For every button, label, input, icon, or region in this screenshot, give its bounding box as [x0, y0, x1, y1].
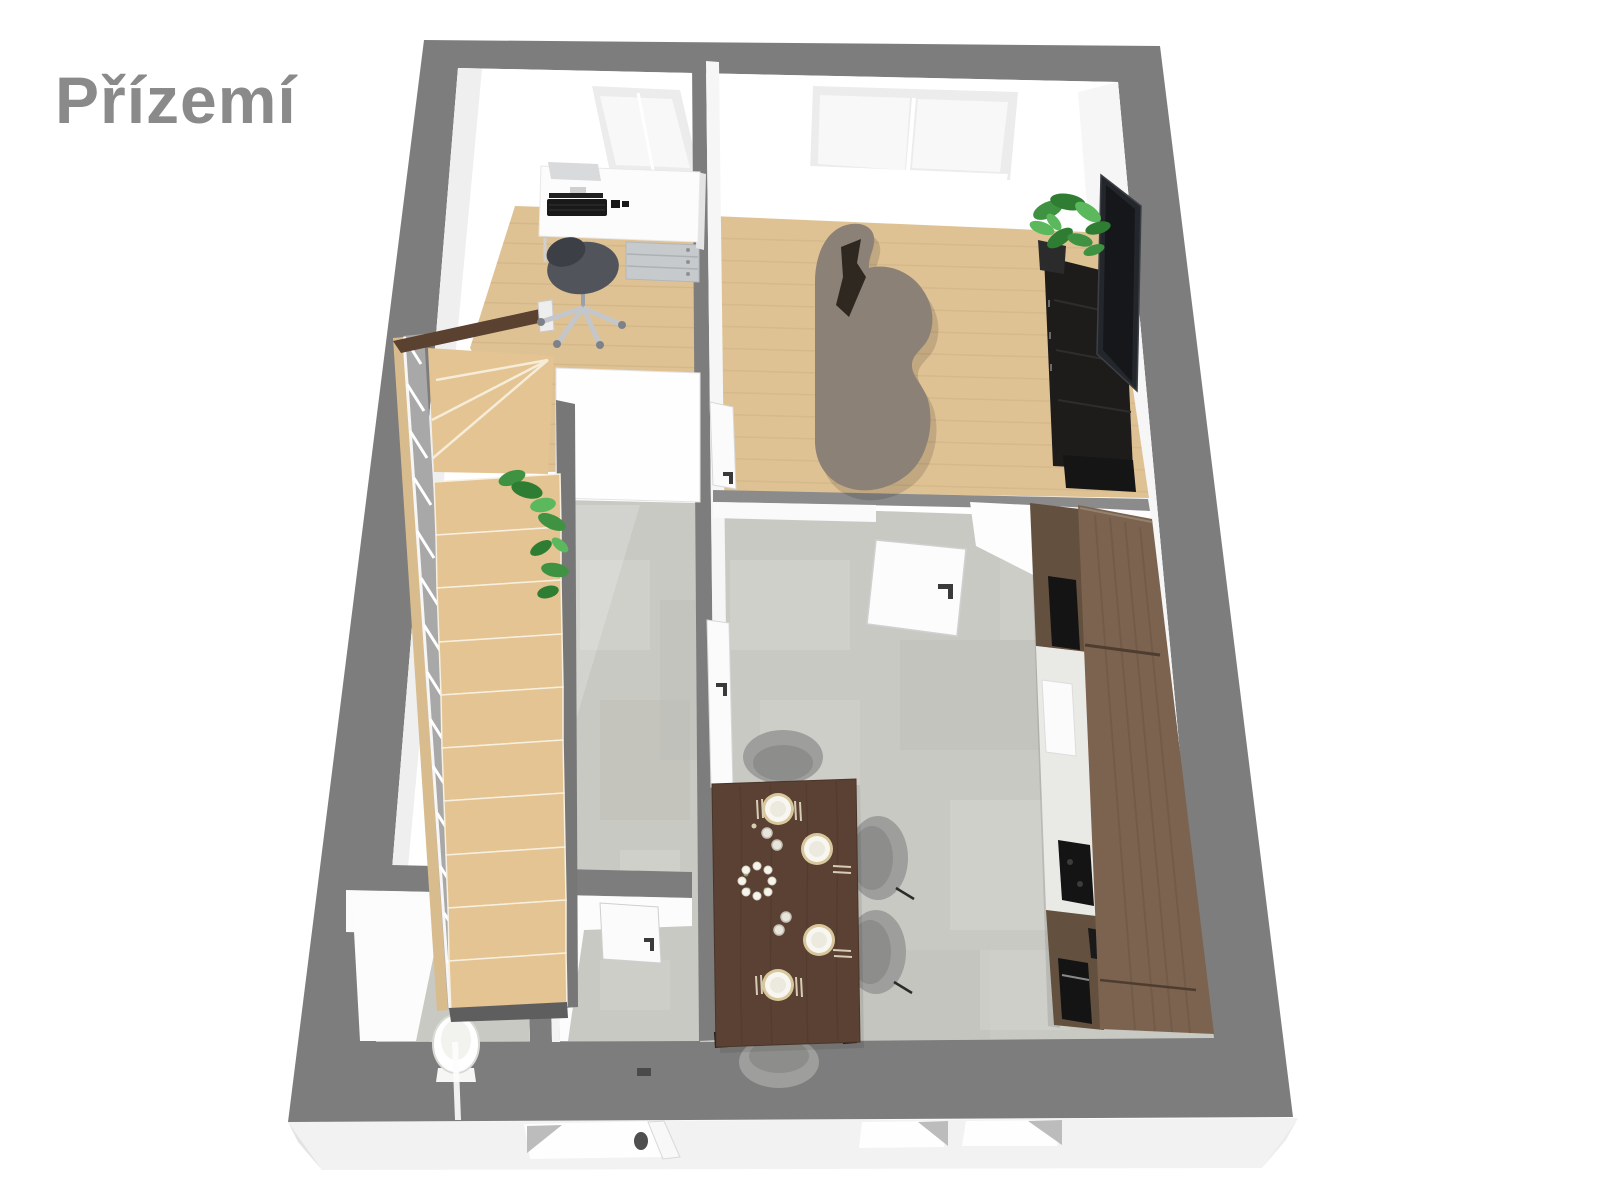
winder-steps — [428, 348, 554, 474]
desk — [539, 162, 706, 250]
door-stop — [637, 1068, 651, 1076]
oven — [1058, 958, 1092, 1024]
mouse — [611, 200, 620, 208]
floor-plan-canvas: Přízemí — [0, 0, 1600, 1200]
living-room-window — [808, 86, 1018, 184]
counter-block — [1042, 680, 1076, 756]
media-unit-low — [1063, 455, 1136, 492]
exterior-base-skirt — [288, 1118, 1298, 1170]
floor-plan-rendering — [0, 0, 1600, 1200]
kitchen-appliance-upper — [1048, 576, 1080, 650]
tv — [1097, 175, 1141, 391]
stair-treads — [434, 474, 567, 1014]
floor-title: Přízemí — [55, 62, 297, 138]
entry-door-knob — [634, 1132, 648, 1150]
kitchen-tall-cabinet-top — [1030, 503, 1087, 652]
drawer-unit — [626, 242, 699, 282]
exterior-window-left — [859, 1121, 948, 1148]
door-living-dining — [867, 540, 966, 636]
stair-side-wall — [556, 368, 700, 502]
door-hall-living — [710, 402, 736, 489]
dining-chair-top — [743, 730, 823, 784]
cooktop — [1058, 840, 1094, 906]
desk-shelf — [548, 162, 601, 181]
door-hall-dining — [707, 620, 733, 790]
door-entry — [600, 903, 661, 963]
exterior-window-right — [962, 1120, 1062, 1146]
entry-door-exterior — [524, 1121, 680, 1159]
